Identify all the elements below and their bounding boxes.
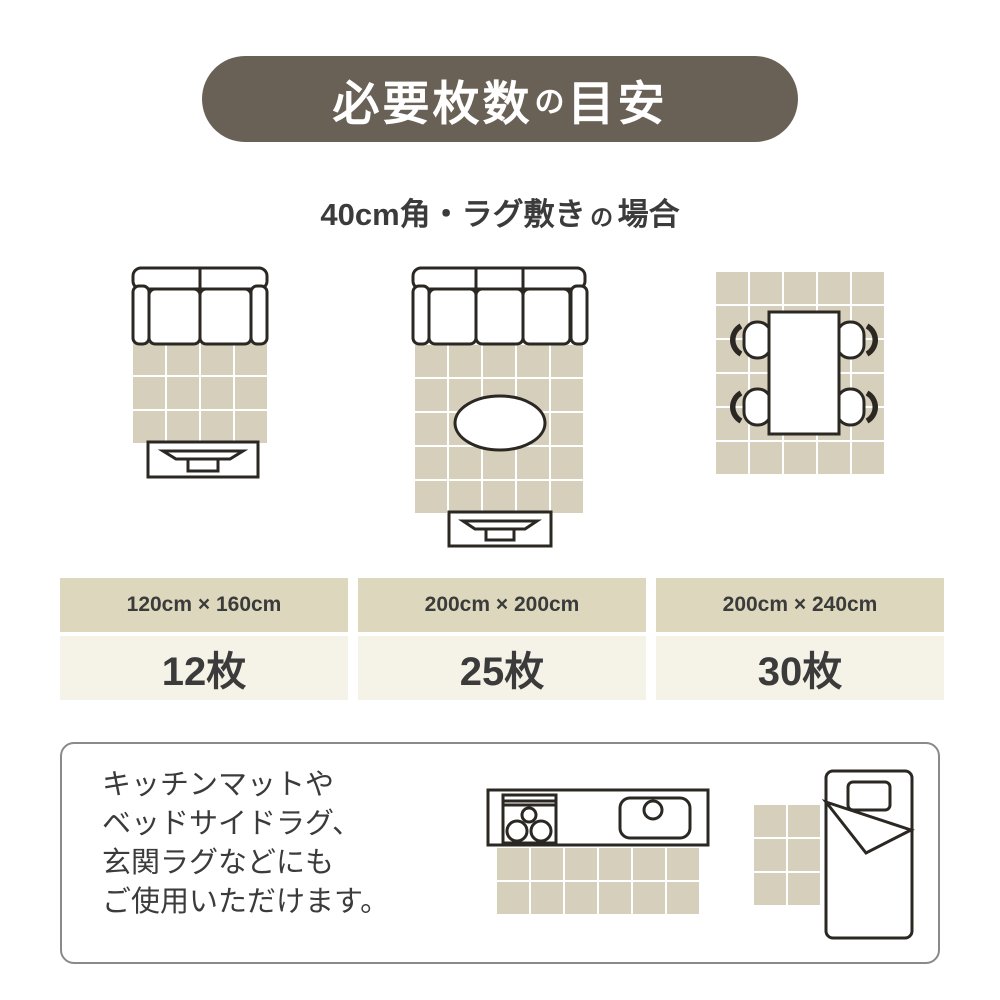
rug-size-label: 200cm × 240cm <box>656 578 944 632</box>
dining-table-icon <box>769 312 839 434</box>
infographic-page: 必要枚数 の 目安 40cm角・ラグ敷き の 場合 <box>0 0 1000 1000</box>
kitchen-mat-grid-6x2 <box>497 848 699 914</box>
chair-icon <box>837 389 875 425</box>
subtitle-particle: の <box>590 204 613 230</box>
kitchen-diagram <box>486 788 710 918</box>
rug-size-label: 200cm × 200cm <box>358 578 646 632</box>
usage-note-text: キッチンマットや ベッドサイドラグ、 玄関ラグなどにも ご使用いただけます。 <box>102 766 462 922</box>
subtitle: 40cm角・ラグ敷き の 場合 <box>0 189 1000 234</box>
title-pill: 必要枚数 の 目安 <box>202 56 798 142</box>
tile-count-label: 12枚 <box>60 636 348 700</box>
tv-board-icon <box>449 512 551 546</box>
bed-diagram <box>754 769 916 941</box>
living-small-diagram <box>127 266 273 480</box>
note-line: キッチンマットや <box>102 766 462 805</box>
page-title-part: 必要枚数 <box>333 65 533 134</box>
oval-table-icon <box>455 396 545 450</box>
subtitle-part: 40cm角・ラグ敷き <box>320 197 585 232</box>
page-title-part: 目安 <box>568 65 668 134</box>
chair-icon <box>733 389 771 425</box>
bedside-rug-grid-2x3 <box>754 805 820 905</box>
rug-size-label: 120cm × 160cm <box>60 578 348 632</box>
note-line: 玄関ラグなどにも <box>102 844 462 883</box>
dining-diagram <box>714 270 886 476</box>
tile-count-label: 30枚 <box>656 636 944 700</box>
tile-count-label: 25枚 <box>358 636 646 700</box>
tv-board-icon <box>148 442 258 477</box>
size-card: 120cm × 160cm 12枚 <box>60 578 348 700</box>
note-line: ご使用いただけます。 <box>102 883 462 922</box>
size-card: 200cm × 200cm 25枚 <box>358 578 646 700</box>
sofa-2seat-icon <box>133 268 267 344</box>
living-large-diagram <box>411 266 589 548</box>
subtitle-part: 場合 <box>618 197 680 232</box>
sofa-3seat-icon <box>413 268 587 344</box>
note-line: ベッドサイドラグ、 <box>102 805 462 844</box>
bed-icon <box>826 771 912 938</box>
size-card: 200cm × 240cm 30枚 <box>656 578 944 700</box>
page-title-particle: の <box>533 77 568 121</box>
kitchen-counter-icon <box>488 790 708 845</box>
rug-grid-4x3 <box>133 343 267 443</box>
